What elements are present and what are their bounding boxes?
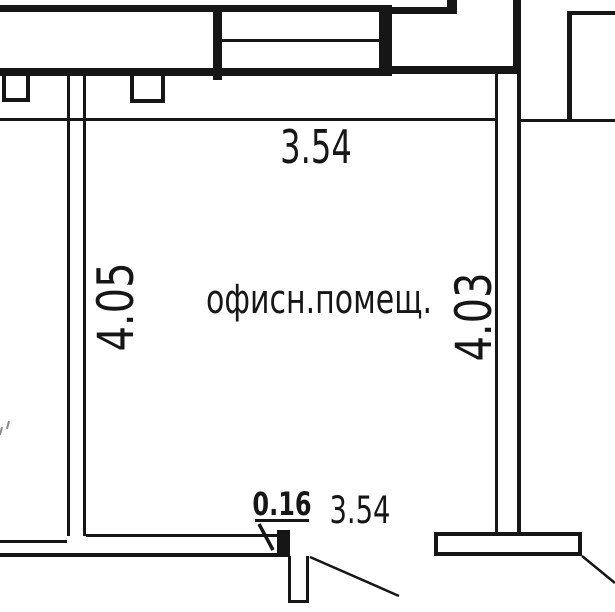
- window-line: [222, 39, 379, 42]
- wall-bottom-office-upper: [86, 534, 287, 537]
- wall-top-step: [447, 0, 457, 14]
- wall-toprightblock-bottom: [385, 66, 521, 74]
- wall-office-top: [0, 118, 495, 121]
- wall-middle-pier: [379, 5, 392, 74]
- wall-office-left-inner: [83, 76, 86, 536]
- wall-topblock-bottom: [0, 68, 392, 76]
- pier-stub: [288, 556, 309, 603]
- wall-notch-top: [568, 11, 615, 15]
- room-label: офисн.помещ.: [206, 276, 432, 324]
- dimension-bottom: 3.54: [316, 492, 405, 529]
- diagonal-leader-left: [310, 557, 399, 596]
- wall-notch-vertical: [567, 11, 572, 122]
- jamb-square-right: [130, 76, 165, 103]
- wall-bottom-left-upper: [0, 540, 67, 543]
- diagonal-leader-right: [582, 556, 615, 583]
- dimension-top: 3.54: [274, 124, 358, 170]
- wall-top-band: [0, 5, 392, 12]
- floor-plan: 3.54 4.05 4.03 3.54 0.16 офисн.помещ.: [0, 0, 615, 612]
- stray-mark: [6, 421, 10, 429]
- wall-end-cap: [277, 530, 290, 557]
- dim-opening-leader: [259, 524, 273, 550]
- wall-toprightblock-right: [513, 0, 521, 74]
- stray-mark: [0, 427, 3, 435]
- jamb-square-left: [2, 76, 30, 102]
- wall-office-right-outer: [517, 74, 521, 535]
- wall-corridor-right: [520, 119, 615, 122]
- wall-office-left-outer: [67, 76, 70, 536]
- dimension-opening: 0.16: [245, 488, 320, 520]
- wall-bottom-lower: [0, 553, 288, 557]
- dimension-right: 4.03: [451, 269, 497, 365]
- wall-footing: [434, 532, 582, 556]
- dimension-left: 4.05: [93, 259, 139, 355]
